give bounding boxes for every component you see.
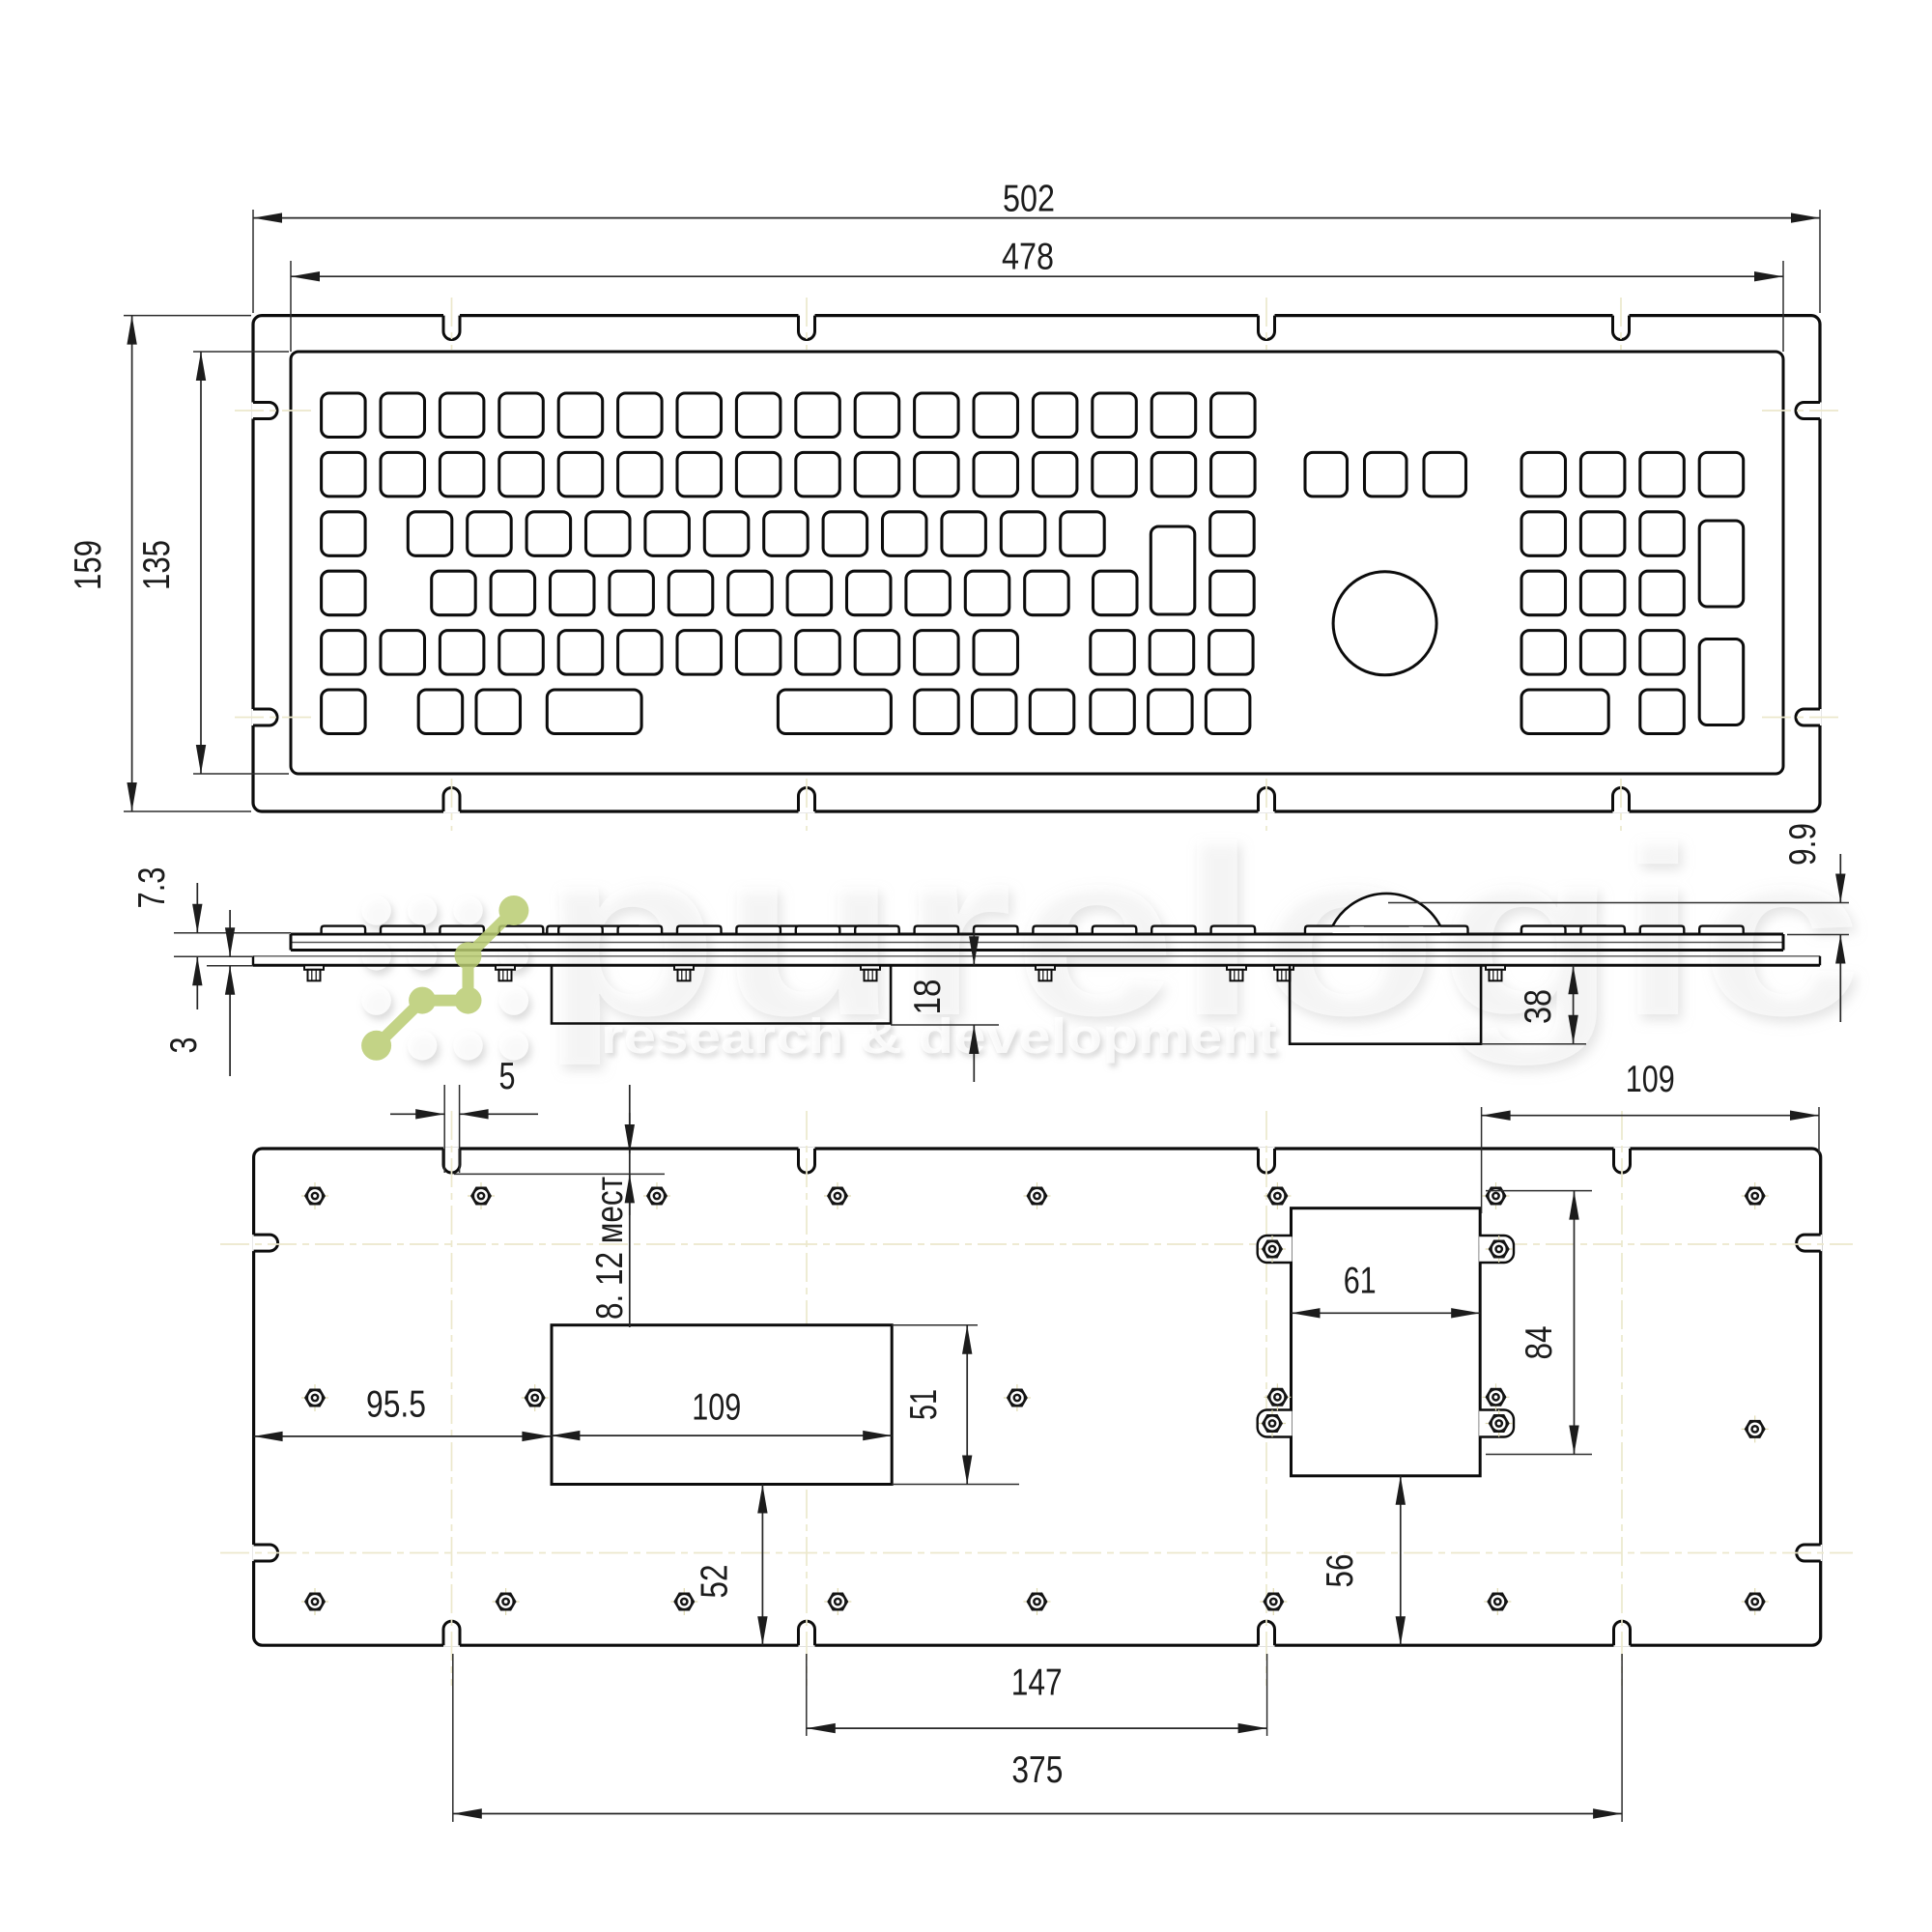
svg-text:135: 135 (136, 540, 178, 590)
svg-text:8. 12 мест: 8. 12 мест (589, 1177, 631, 1320)
svg-text:9.9: 9.9 (1782, 823, 1824, 866)
svg-text:375: 375 (1011, 1749, 1063, 1791)
svg-text:3: 3 (163, 1037, 205, 1054)
svg-text:159: 159 (68, 540, 109, 590)
svg-text:38: 38 (1518, 989, 1559, 1024)
svg-text:5: 5 (499, 1056, 516, 1097)
svg-text:84: 84 (1519, 1326, 1560, 1360)
svg-text:502: 502 (1003, 178, 1055, 219)
svg-text:56: 56 (1320, 1554, 1361, 1588)
svg-text:109: 109 (1626, 1059, 1675, 1100)
svg-text:51: 51 (903, 1389, 945, 1420)
svg-text:7.3: 7.3 (131, 867, 173, 909)
svg-text:18: 18 (907, 980, 949, 1015)
svg-text:147: 147 (1011, 1662, 1063, 1703)
svg-text:research & development: research & development (601, 1009, 1277, 1064)
svg-text:61: 61 (1344, 1261, 1377, 1302)
svg-text:52: 52 (695, 1565, 736, 1599)
svg-text:95.5: 95.5 (366, 1383, 426, 1425)
svg-text:109: 109 (692, 1386, 741, 1428)
svg-text:478: 478 (1002, 236, 1054, 277)
